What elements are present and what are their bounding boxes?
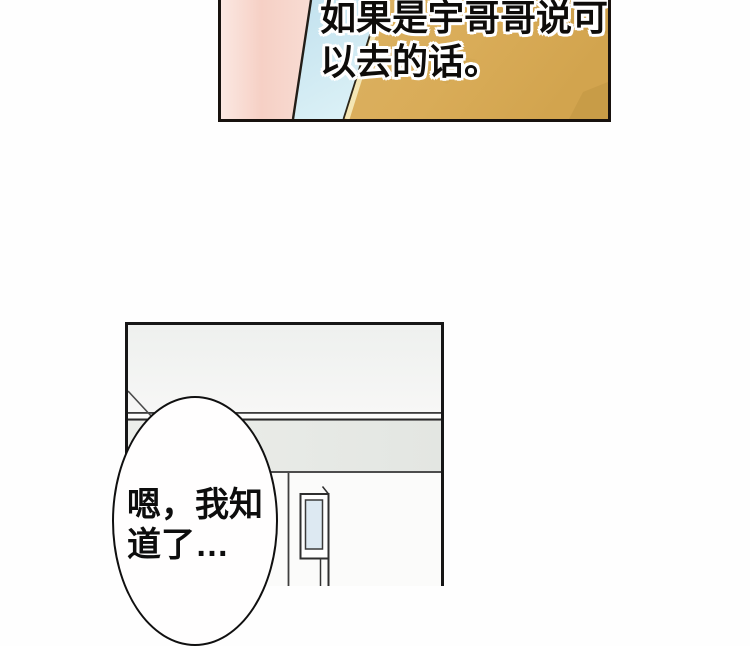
door-glass <box>306 500 323 549</box>
flashback-caption: 如果是宇哥哥说可 以去的话。 <box>320 0 608 84</box>
caption-line-1: 如果是宇哥哥说可 <box>320 0 608 40</box>
flashback-panel: 如果是宇哥哥说可 以去的话。 <box>218 0 611 122</box>
bubble-line-1: 嗯，我知 <box>127 485 263 525</box>
caption-line-2: 以去的话。 <box>320 40 608 84</box>
bubble-line-2: 道了… <box>127 525 263 565</box>
speech-bubble-text: 嗯，我知 道了… <box>127 485 263 565</box>
